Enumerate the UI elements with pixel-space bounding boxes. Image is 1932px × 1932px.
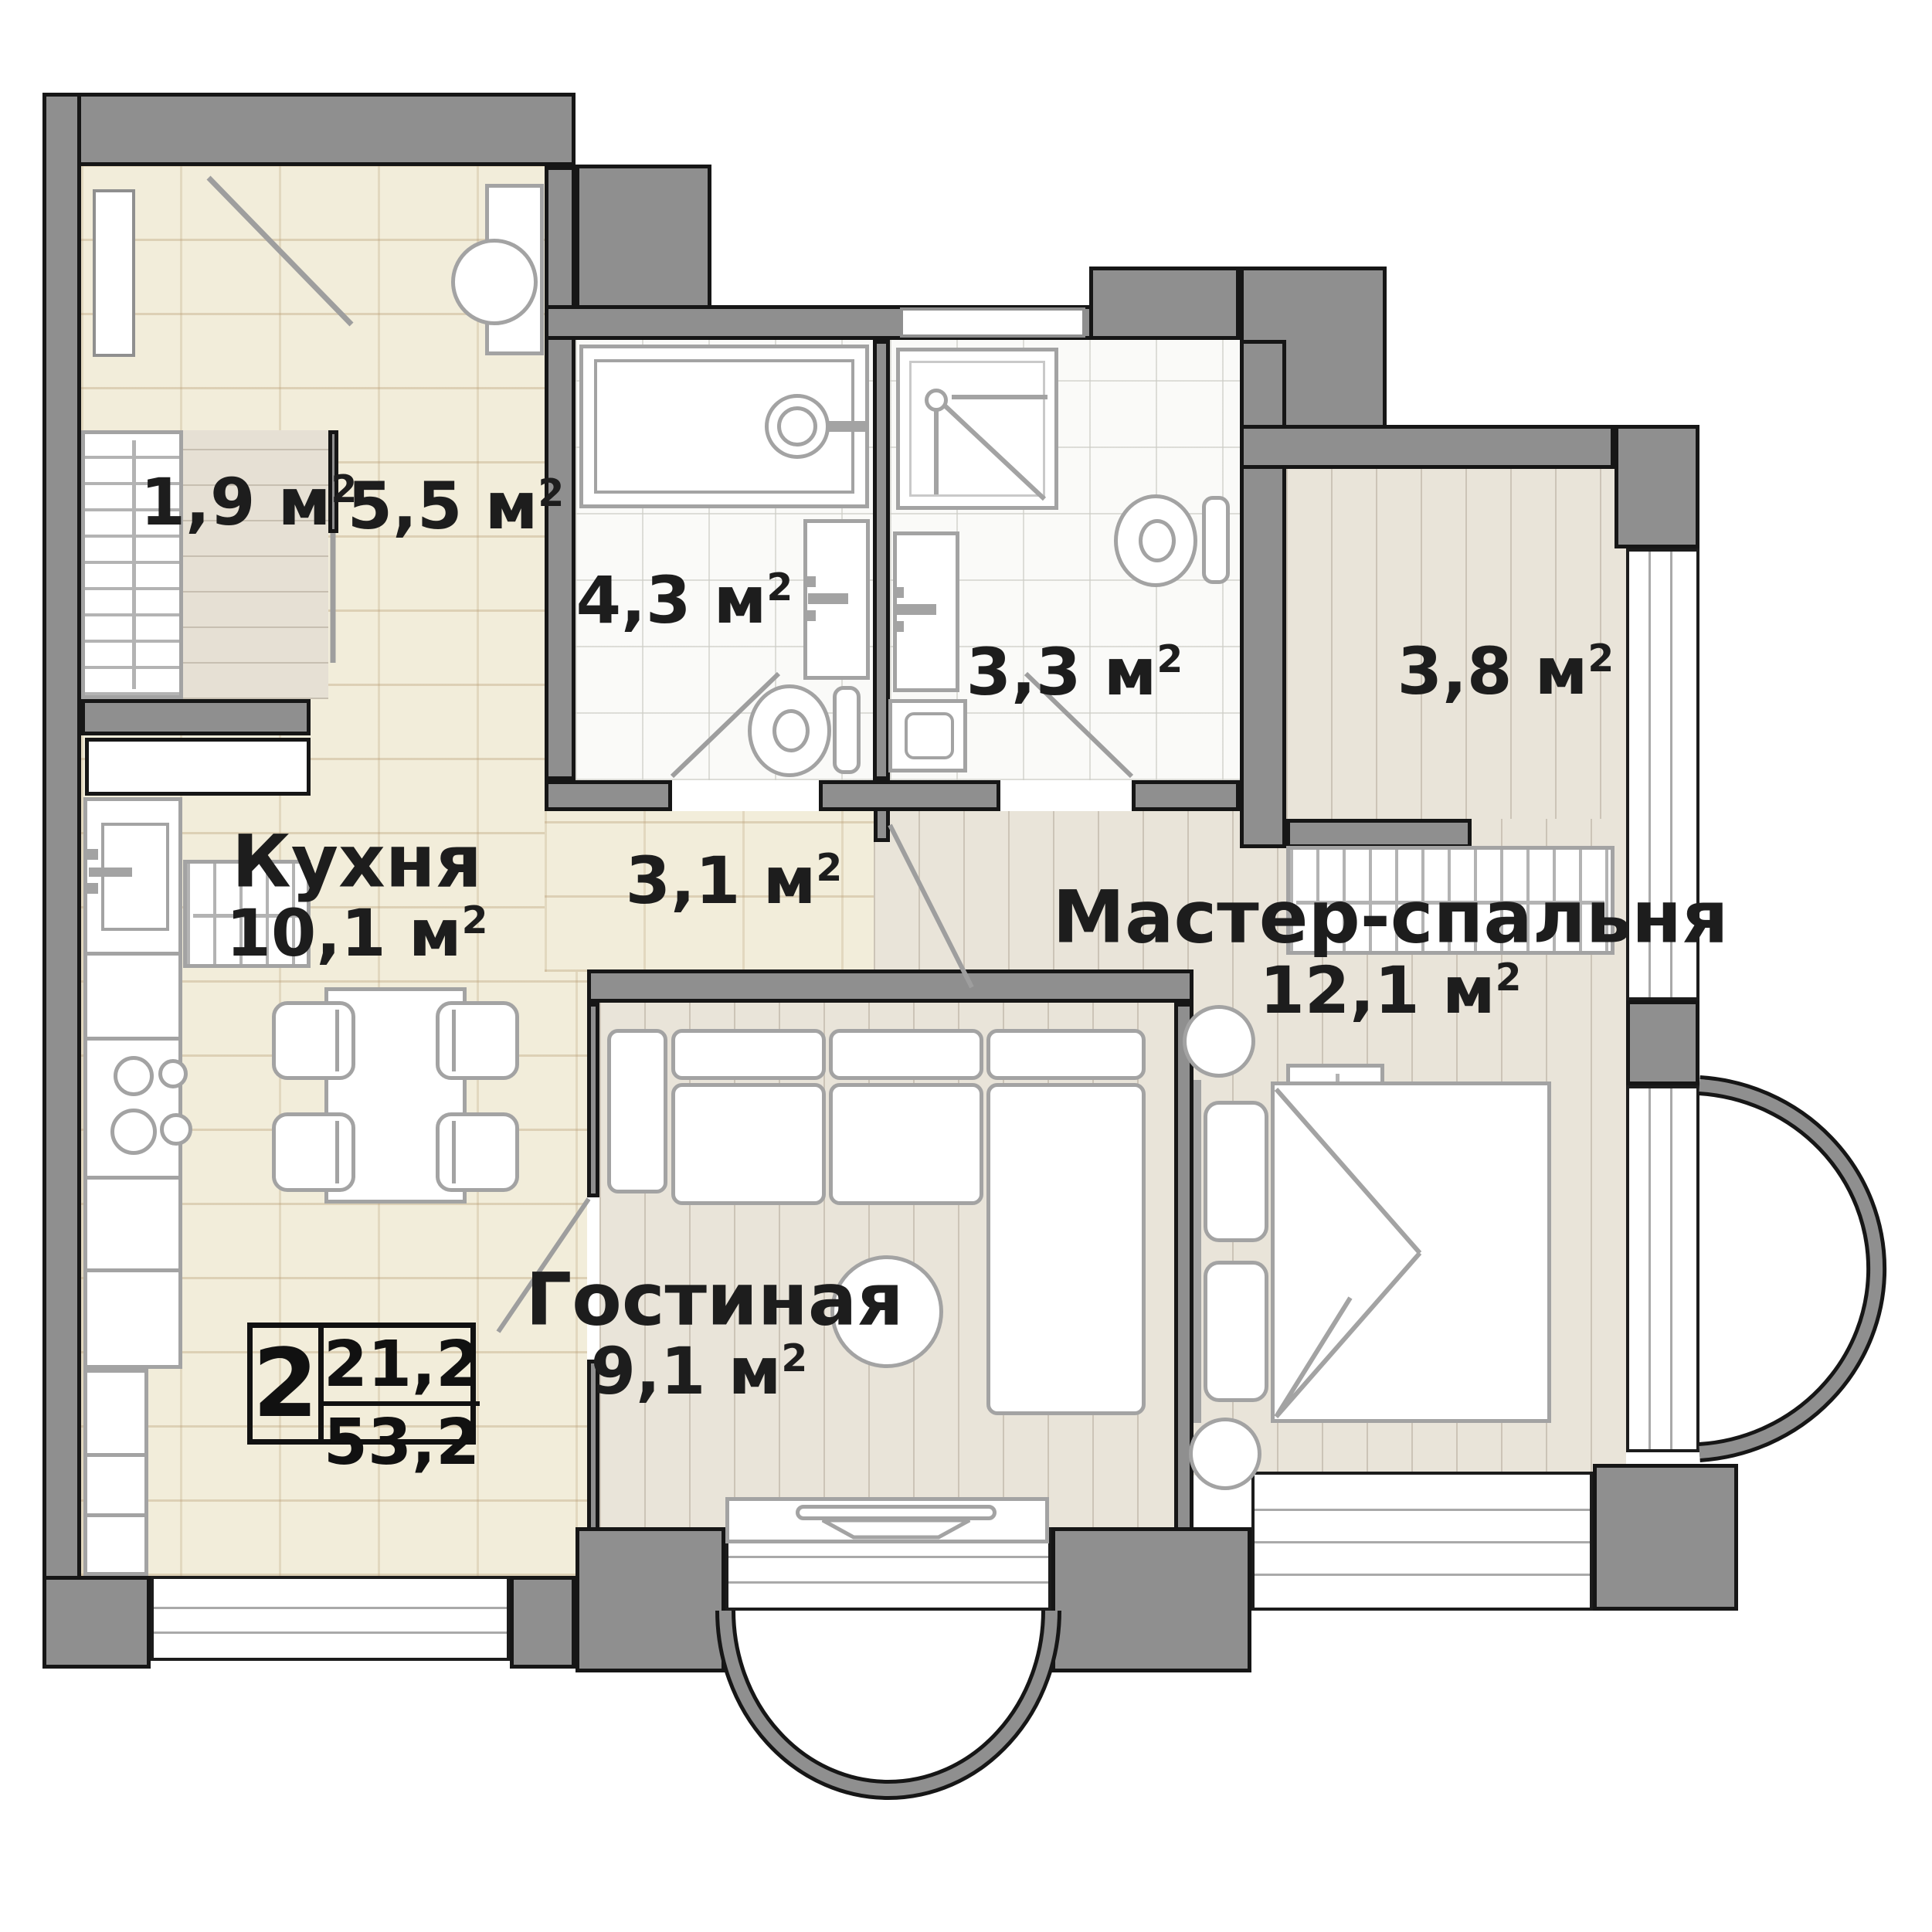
decor: [87, 1453, 144, 1457]
sofa-chaise: [986, 1083, 1146, 1415]
decor: [728, 1581, 1048, 1584]
area-sup: 2: [462, 899, 488, 942]
decor: [87, 1176, 178, 1180]
room-area-corridor: 3,1 м2: [626, 843, 843, 918]
area-sup: 2: [1156, 638, 1183, 681]
badge-total-area: 53,2: [324, 1406, 480, 1479]
bed-headboard: [1193, 1080, 1201, 1423]
room-name-text: Гостиная: [525, 1258, 903, 1343]
area-unit: м: [763, 843, 817, 918]
chair-icon: [272, 1001, 355, 1080]
stove-burner-icon: [114, 1056, 154, 1096]
room-name-living-room: Гостиная: [525, 1258, 903, 1343]
decor: [452, 1121, 456, 1183]
decor: [87, 849, 98, 860]
decor: [335, 1121, 339, 1183]
decor: [87, 952, 178, 956]
area-sup: 2: [816, 847, 842, 890]
bay-window-living-outline: [725, 1611, 1051, 1790]
area-value: 9,1: [591, 1333, 706, 1409]
wall-bottom-pier-kitchen: [510, 1576, 576, 1669]
kitchen-cabinet-low: [83, 1369, 148, 1576]
entry-cabinet: [85, 738, 311, 796]
room-area-living-room: 9,1 м2: [591, 1333, 808, 1409]
room-name-text: Мастер-спальня: [1053, 876, 1729, 960]
area-value: 1,9: [141, 464, 256, 540]
decor: [154, 1607, 507, 1609]
decor: [87, 1268, 178, 1272]
wall-bath-divider: [873, 340, 890, 780]
wall-bath-wardrobe: [1240, 340, 1286, 848]
sofa-back-cushion: [829, 1029, 983, 1080]
chair-icon: [436, 1001, 519, 1080]
apartment-info-badge: 2 21,2 53,2: [247, 1323, 476, 1445]
toilet-bowl-inner: [1139, 519, 1176, 562]
chair-icon: [272, 1112, 355, 1192]
kitchen-faucet-icon: [89, 868, 132, 877]
wall-left: [42, 93, 81, 1611]
decor: [905, 712, 954, 759]
decor: [154, 1632, 507, 1634]
badge-rooms-count: 2: [253, 1328, 324, 1439]
sofa-back-cushion: [671, 1029, 826, 1080]
wall-bottom-pier-living-left: [576, 1527, 725, 1672]
tv-stand-icon: [725, 1497, 1049, 1543]
decor: [87, 1513, 144, 1517]
stove-burner-icon: [158, 1059, 188, 1088]
room-area-bathroom-big: 4,3 м2: [576, 562, 793, 638]
room-name-text: Кухня: [232, 820, 482, 905]
water-heater-drum-icon: [451, 239, 538, 325]
chair-icon: [436, 1112, 519, 1192]
area-sup: 2: [538, 472, 564, 515]
wall-living-left-upper: [587, 1003, 599, 1197]
toilet-tank-icon: [1202, 496, 1230, 584]
area-value: 10,1: [226, 895, 385, 971]
sofa-armrest-icon: [607, 1029, 667, 1193]
area-value: 3,1: [626, 843, 741, 918]
pillow-icon: [1204, 1101, 1268, 1242]
area-unit: м: [1535, 633, 1588, 709]
area-unit: м: [728, 1333, 782, 1409]
pillow-icon: [1204, 1261, 1268, 1402]
wall-niche-top: [900, 307, 1085, 338]
window-bedroom-bottom: [1251, 1472, 1593, 1611]
window-bedroom-bay-plane: [1626, 1085, 1699, 1452]
room-name-kitchen: Кухня: [232, 820, 482, 905]
area-unit: м: [485, 468, 538, 544]
area-unit: м: [1104, 634, 1157, 710]
wall-living-top: [587, 969, 1193, 1003]
room-area-entry-closet: 1,9 м2: [141, 464, 358, 540]
badge-living-area: 21,2: [324, 1328, 480, 1406]
decor: [87, 883, 98, 894]
door-handle: [896, 604, 936, 615]
decor: [1255, 1509, 1590, 1511]
decor: [728, 1556, 1048, 1558]
decor: 21,2 53,2: [324, 1328, 480, 1439]
area-value: 12,1: [1259, 952, 1419, 1028]
decor: [1255, 1541, 1590, 1543]
nightstand-icon: [1189, 1418, 1261, 1490]
wall-bottom-pier-living-right: [1051, 1527, 1251, 1672]
room-area-hallway: 5,5 м2: [348, 468, 565, 544]
bay-window-living-ring: [725, 1611, 1051, 1790]
wall-bath-bottom-1: [545, 780, 672, 811]
duct-niche: [93, 189, 135, 357]
area-unit: м: [278, 464, 331, 540]
wall-bath-bottom-2: [819, 780, 1000, 811]
area-sup: 2: [781, 1337, 807, 1380]
bathtub-faucet-inner: [777, 406, 817, 446]
area-value: 3,8: [1397, 633, 1513, 709]
room-area-bathroom-small: 3,3 м2: [966, 634, 1183, 710]
area-sup: 2: [1587, 637, 1614, 681]
nightstand-icon: [1183, 1005, 1255, 1078]
faucet-stub: [827, 421, 867, 432]
area-unit: м: [1442, 952, 1496, 1028]
room-name-master-bedroom: Мастер-спальня: [1053, 876, 1729, 960]
toilet-tank-icon: [833, 686, 861, 774]
decor: [87, 1037, 178, 1041]
bay-window-bedroom-ring: [1699, 1085, 1876, 1452]
decor: [1255, 1574, 1590, 1576]
room-area-master-bedroom: 12,1 м2: [1259, 952, 1521, 1028]
kitchen-counter: [83, 797, 182, 1369]
area-unit: м: [409, 895, 462, 971]
door-hinge: [893, 587, 904, 598]
toilet-bowl-inner: [772, 709, 810, 752]
bed-icon: [1271, 1081, 1551, 1423]
wall-wardrobe-bottom: [1286, 819, 1472, 848]
room-area-kitchen: 10,1 м2: [226, 895, 487, 971]
sink-vanity-icon: [888, 699, 967, 772]
decor: [1648, 1088, 1651, 1449]
wall-corner-top-right: [1615, 425, 1699, 548]
window-kitchen: [151, 1576, 510, 1661]
wall-bottom-left-corner: [42, 1576, 151, 1669]
area-value: 4,3: [576, 562, 691, 638]
door-handle: [808, 593, 848, 604]
decor: [1670, 1088, 1672, 1449]
bay-window-bedroom-outline: [1699, 1085, 1876, 1452]
area-sup: 2: [766, 566, 793, 609]
wall-bedroom-door-stub: [874, 807, 890, 842]
stove-burner-icon: [160, 1113, 192, 1146]
decor: [909, 361, 1045, 497]
door-hinge: [805, 576, 816, 587]
wall-wardrobe-top: [1240, 425, 1615, 469]
kitchen-sink-icon: [101, 823, 169, 931]
shower-drain-icon: [925, 389, 948, 412]
wall-top-right-block: [1089, 267, 1240, 340]
floor-plan-canvas: 1,9 м2 5,5 м2 4,3 м2 3,3 м2 3,8 м2 Кухня…: [0, 0, 1932, 1932]
decor: [335, 1010, 339, 1071]
area-sup: 2: [1496, 956, 1522, 1000]
shower-icon: [896, 348, 1058, 510]
wall-right-mid-block: [1626, 1000, 1699, 1085]
wall-closet-bottom: [81, 699, 311, 735]
door-hinge: [805, 610, 816, 621]
tv-icon: [796, 1505, 997, 1520]
sofa-back-cushion: [986, 1029, 1146, 1080]
stove-burner-icon: [110, 1109, 157, 1155]
wall-bottom-right-corner: [1593, 1464, 1738, 1611]
area-unit: м: [714, 562, 767, 638]
wall-top-left: [42, 93, 576, 166]
sofa-seat: [829, 1083, 983, 1205]
area-value: 5,5: [348, 468, 463, 544]
decor: [452, 1010, 456, 1071]
sofa-seat: [671, 1083, 826, 1205]
room-area-wardrobe: 3,8 м2: [1397, 633, 1615, 709]
door-hinge: [893, 621, 904, 632]
area-value: 3,3: [966, 634, 1081, 710]
wall-bath-bottom-3: [1132, 780, 1240, 811]
